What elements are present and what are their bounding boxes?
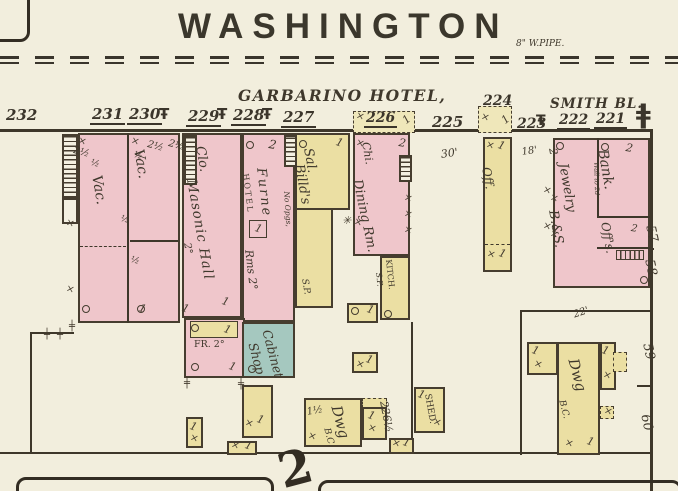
vent-circle-icon (191, 324, 199, 332)
vent-circle-icon (299, 140, 307, 148)
window-x-mark: × (432, 416, 443, 429)
window-x-mark: × (353, 216, 364, 229)
window-x-mark: × (486, 248, 497, 261)
window-x-mark: × (355, 137, 366, 150)
story-one-mark: 1 (496, 138, 507, 153)
story-one-mark: 1 (366, 408, 377, 423)
story-one-mark: 1 (401, 435, 412, 450)
story-one-mark: 1 (180, 301, 191, 316)
window-x-mark: × (130, 135, 141, 148)
story-one-mark: 1 (585, 434, 596, 449)
vent-circle-icon (640, 276, 648, 284)
vent-circle-icon (384, 310, 392, 318)
fence-icon: ╪ (238, 379, 244, 390)
window-x-mark: × (307, 430, 318, 443)
story-one-mark: 1 (400, 112, 414, 126)
window-x-mark: × (77, 135, 88, 148)
window-x-mark: × (367, 422, 378, 435)
story-one-mark: 1 (497, 246, 508, 261)
vent-circle-icon (137, 305, 145, 313)
story-one-mark: 1 (530, 343, 541, 358)
story-one-mark: 1 (243, 438, 254, 453)
story-one-mark: 1 (416, 387, 427, 402)
symbol-layer: ×××××××××××××××××××××××××××××11111111111… (0, 0, 678, 491)
window-x-mark: × (549, 192, 560, 205)
window-x-mark: × (391, 437, 402, 450)
window-x-mark: × (244, 417, 255, 430)
window-x-mark: × (549, 228, 560, 241)
vent-circle-icon (601, 143, 609, 151)
vent-circle-icon (556, 142, 564, 150)
window-x-mark: × (403, 224, 414, 237)
vent-circle-icon (246, 141, 254, 149)
story-one-mark: 1 (188, 419, 199, 434)
window-x-mark: × (533, 358, 544, 371)
vent-circle-icon (82, 305, 90, 313)
window-x-mark: × (485, 139, 496, 152)
window-x-mark: × (65, 283, 76, 296)
story-one-mark: 1 (600, 343, 611, 358)
fence-icon: ╪ (44, 329, 50, 340)
sanborn-map: WASHINGTON 8" W.PIPE. GARBARINO HOTEL, S… (0, 0, 678, 491)
story-one-mark: 1 (220, 294, 231, 309)
window-x-mark: × (230, 439, 241, 452)
window-x-mark: × (480, 111, 491, 124)
vent-circle-icon (351, 307, 359, 315)
story-one-mark: 1 (334, 135, 345, 150)
window-x-mark: × (602, 369, 613, 382)
window-x-mark: × (355, 110, 366, 123)
window-x-mark: × (403, 208, 414, 221)
window-x-mark: × (564, 437, 575, 450)
fence-icon: ╪ (57, 329, 63, 340)
vent-star-icon: ✳ (342, 214, 351, 227)
story-one-mark: 1 (365, 302, 376, 317)
vent-circle-icon (191, 363, 199, 371)
vent-circle-icon (248, 365, 256, 373)
window-x-mark: × (603, 405, 614, 418)
story-one-mark: 1 (255, 412, 266, 427)
story-one-mark: 1 (227, 359, 238, 374)
fence-icon: ╪ (184, 378, 190, 389)
story-one-mark: 1 (253, 221, 264, 236)
window-x-mark: × (403, 192, 414, 205)
story-one-mark: 1 (222, 322, 233, 337)
fence-icon: ╪ (69, 321, 75, 332)
story-one-mark: 1 (364, 352, 375, 367)
window-x-mark: × (65, 217, 76, 230)
story-one-mark: 1 (499, 112, 513, 126)
